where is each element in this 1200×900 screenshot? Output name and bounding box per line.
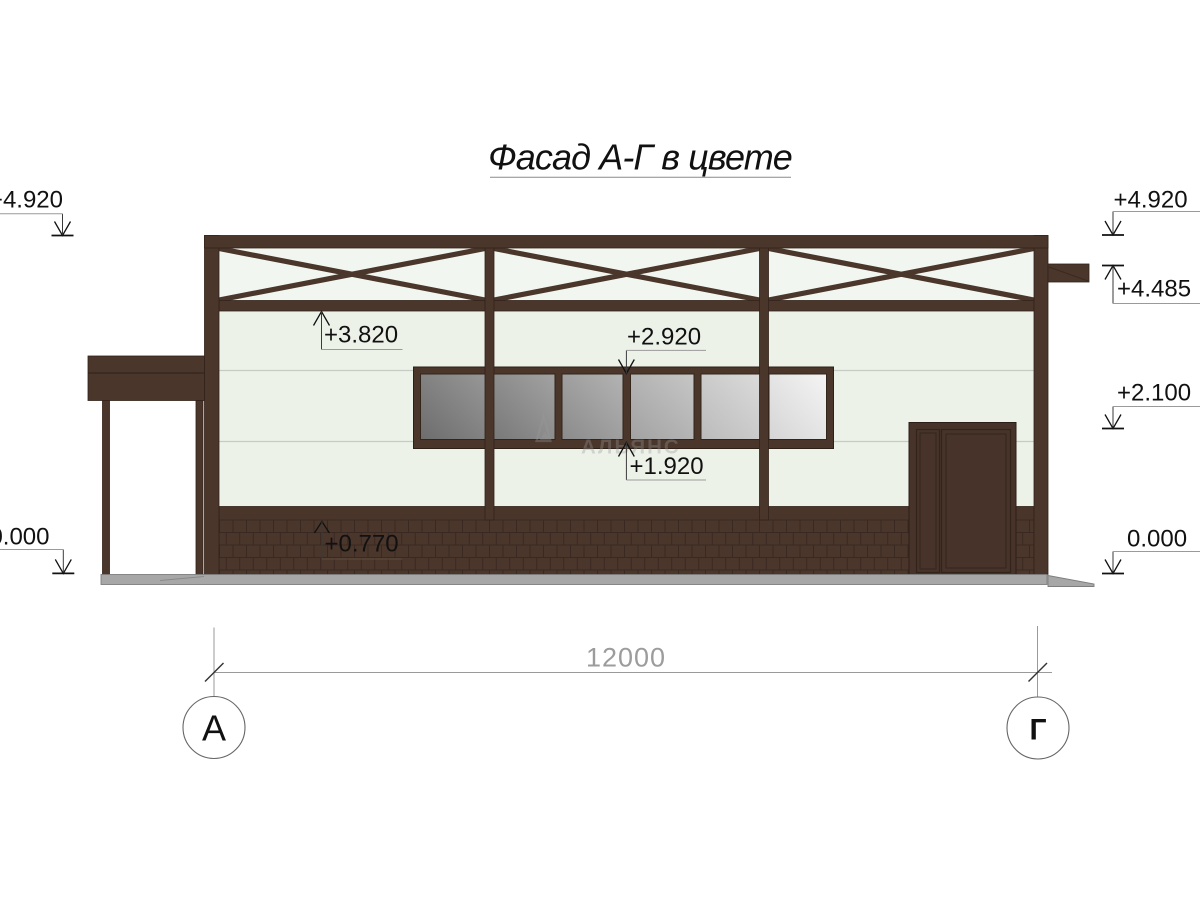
- svg-text:+1.920: +1.920: [630, 453, 704, 480]
- svg-text:+3.820: +3.820: [324, 322, 398, 349]
- svg-text:+2.920: +2.920: [627, 324, 701, 351]
- svg-text:+4.920: +4.920: [1114, 187, 1188, 214]
- svg-text:+2.100: +2.100: [1117, 380, 1191, 407]
- svg-text:0.000: 0.000: [1127, 526, 1187, 553]
- svg-text:12000: 12000: [586, 643, 666, 673]
- svg-text:+4.920: +4.920: [0, 187, 63, 214]
- svg-text:А: А: [202, 708, 226, 749]
- svg-text:+4.485: +4.485: [1117, 276, 1191, 303]
- svg-text:0.000: 0.000: [0, 523, 50, 550]
- svg-text:Фасад А-Г в цвете: Фасад А-Г в цвете: [488, 137, 792, 178]
- svg-text:+0.770: +0.770: [325, 531, 399, 558]
- svg-text:Г: Г: [1029, 714, 1046, 747]
